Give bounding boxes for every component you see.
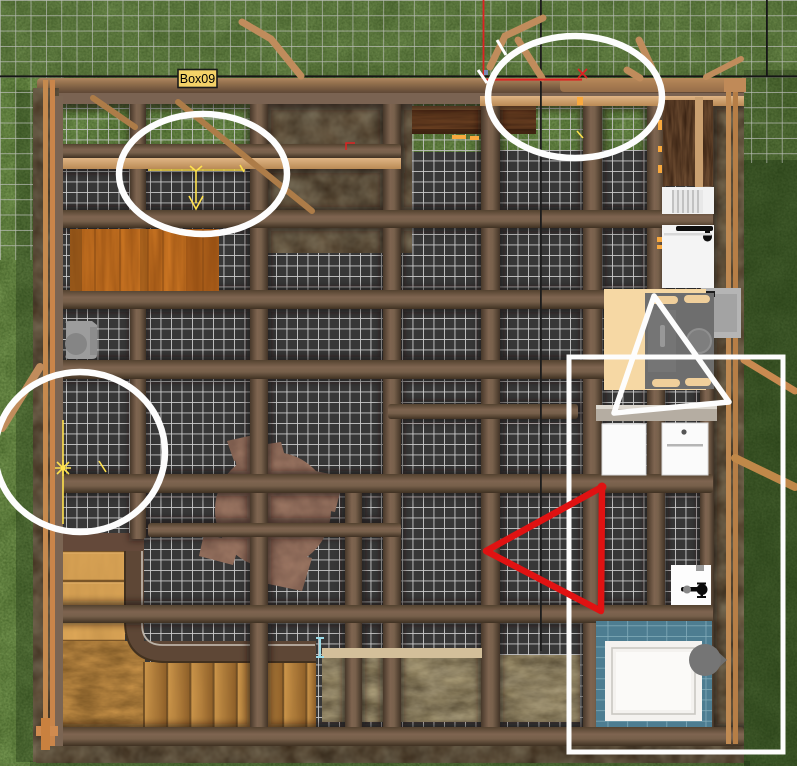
svg-text:Box09: Box09 [180, 72, 215, 86]
